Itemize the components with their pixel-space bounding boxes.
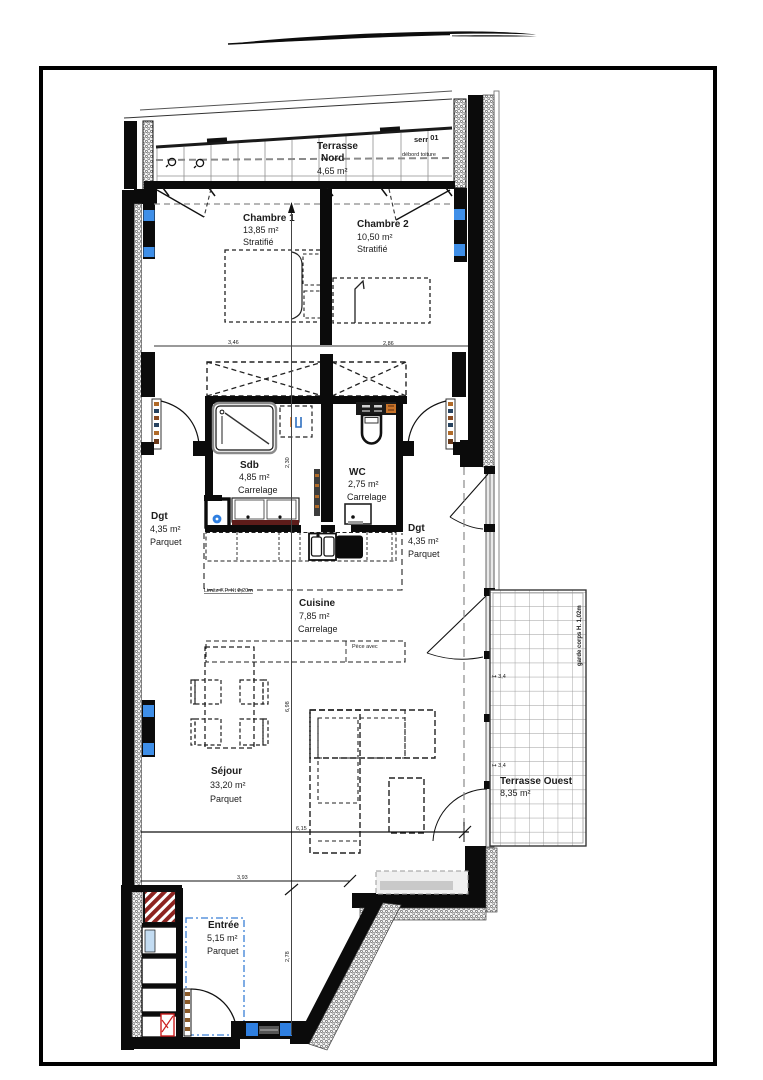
svg-text:Terrasse Ouest: Terrasse Ouest — [500, 776, 573, 787]
svg-text:Parquet: Parquet — [150, 537, 182, 547]
svg-text:Nord: Nord — [321, 153, 344, 164]
svg-text:2,30: 2,30 — [285, 457, 291, 468]
svg-text:4,35 m²: 4,35 m² — [408, 536, 439, 546]
svg-text:7,85 m²: 7,85 m² — [299, 611, 330, 621]
svg-text:4,85 m²: 4,85 m² — [239, 472, 270, 482]
svg-text:4,65 m²: 4,65 m² — [317, 166, 348, 176]
svg-text:Carrelage: Carrelage — [298, 624, 338, 634]
svg-text:garde corps H. 1,02m: garde corps H. 1,02m — [577, 605, 583, 666]
svg-text:↦ 3,4: ↦ 3,4 — [492, 674, 506, 680]
svg-text:13,85 m²: 13,85 m² — [243, 225, 279, 235]
svg-text:2,86: 2,86 — [383, 341, 394, 347]
svg-text:33,20 m²: 33,20 m² — [210, 780, 246, 790]
svg-text:Sdb: Sdb — [240, 460, 259, 471]
svg-text:6,98: 6,98 — [285, 701, 291, 712]
svg-text:Carrelage: Carrelage — [238, 485, 278, 495]
svg-text:Séjour: Séjour — [211, 766, 242, 777]
svg-text:Limite F.P. Ht 2,20m: Limite F.P. Ht 2,20m — [204, 588, 253, 594]
svg-text:5,15 m²: 5,15 m² — [207, 933, 238, 943]
svg-text:Cuisine: Cuisine — [299, 598, 336, 609]
svg-text:Chambre 1: Chambre 1 — [243, 213, 295, 224]
svg-text:WC: WC — [349, 467, 366, 478]
svg-text:Entrée: Entrée — [208, 920, 240, 931]
svg-text:Chambre 2: Chambre 2 — [357, 219, 409, 230]
svg-text:Stratifié: Stratifié — [357, 244, 388, 254]
svg-text:Pèce avec: Pèce avec — [352, 644, 378, 650]
svg-text:Carrelage: Carrelage — [347, 492, 387, 502]
svg-text:3,93: 3,93 — [237, 875, 248, 881]
svg-text:↦ 3,4: ↦ 3,4 — [492, 763, 506, 769]
svg-text:4,35 m²: 4,35 m² — [150, 524, 181, 534]
svg-text:Parquet: Parquet — [408, 549, 440, 559]
svg-text:Terrasse: Terrasse — [317, 141, 358, 152]
svg-text:Parquet: Parquet — [207, 946, 239, 956]
svg-text:Stratifié: Stratifié — [243, 237, 274, 247]
svg-text:Parquet: Parquet — [210, 794, 242, 804]
svg-text:3,46: 3,46 — [228, 340, 239, 346]
svg-text:débord toiture: débord toiture — [402, 152, 436, 158]
svg-text:2,75 m²: 2,75 m² — [348, 479, 379, 489]
svg-text:Dgt: Dgt — [151, 511, 168, 522]
svg-text:8,35 m²: 8,35 m² — [500, 788, 531, 798]
svg-text:2,78: 2,78 — [285, 951, 291, 962]
svg-text:Dgt: Dgt — [408, 523, 425, 534]
svg-text:6,15: 6,15 — [296, 826, 307, 832]
svg-text:10,50 m²: 10,50 m² — [357, 232, 393, 242]
